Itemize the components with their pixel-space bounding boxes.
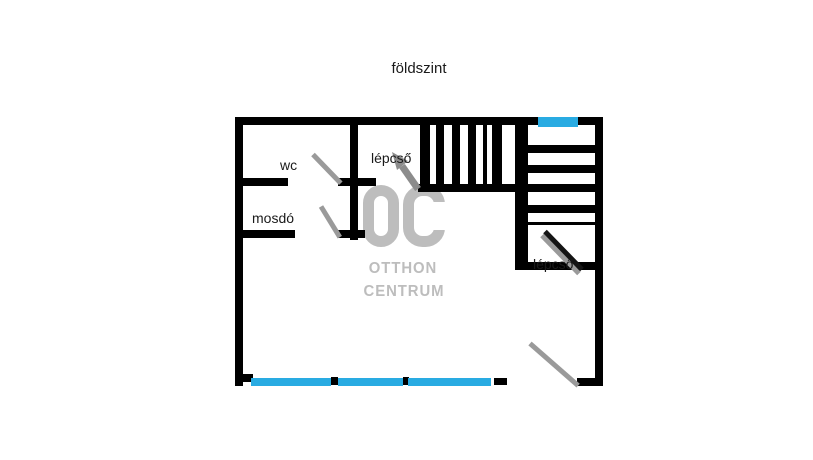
stair-tread-thin	[528, 222, 595, 225]
window-bottom-1	[251, 378, 331, 386]
wall-bottom-mid	[494, 378, 507, 385]
stair-tread-v2	[436, 125, 444, 184]
label-wc: wc	[280, 157, 297, 173]
wall-bottom-right	[577, 378, 603, 386]
label-stairs-lower: lépcső	[533, 256, 573, 272]
wall-under-stairs	[418, 184, 595, 192]
mosdo-door-swing	[319, 205, 342, 238]
label-stairs-upper: lépcső	[371, 150, 411, 166]
stair-tread-h2	[528, 165, 595, 173]
watermark-line2: CENTRUM	[358, 283, 451, 301]
wall-stairs-divider	[515, 117, 528, 270]
wall-outer-left	[235, 117, 243, 386]
wall-mosdo-bottom	[243, 230, 295, 238]
stair-tread-v5	[483, 125, 487, 184]
wall-mosdo-door-stub	[338, 230, 365, 238]
wall-outer-right	[595, 117, 603, 386]
wall-bottom-joint-1	[331, 377, 338, 385]
stair-tread-h3	[528, 205, 595, 213]
floorplan-canvas: földszint OTTHON CENTRUM	[0, 0, 813, 460]
wall-wc-mosdo	[243, 178, 288, 186]
window-bottom-3	[408, 378, 491, 386]
stair-tread-h1	[528, 145, 595, 153]
label-mosdo: mosdó	[252, 210, 294, 226]
floor-title: földszint	[369, 60, 469, 77]
window-top	[538, 117, 578, 127]
stair-tread-v6	[492, 125, 502, 184]
stair-tread-v3	[452, 125, 460, 184]
entry-door-swing	[528, 342, 579, 388]
wall-wc-door-stub	[338, 178, 376, 186]
window-bottom-2	[338, 378, 403, 386]
wc-door-swing	[311, 153, 342, 185]
stair-tread-v4	[468, 125, 476, 184]
watermark-line1: OTTHON	[361, 260, 445, 278]
